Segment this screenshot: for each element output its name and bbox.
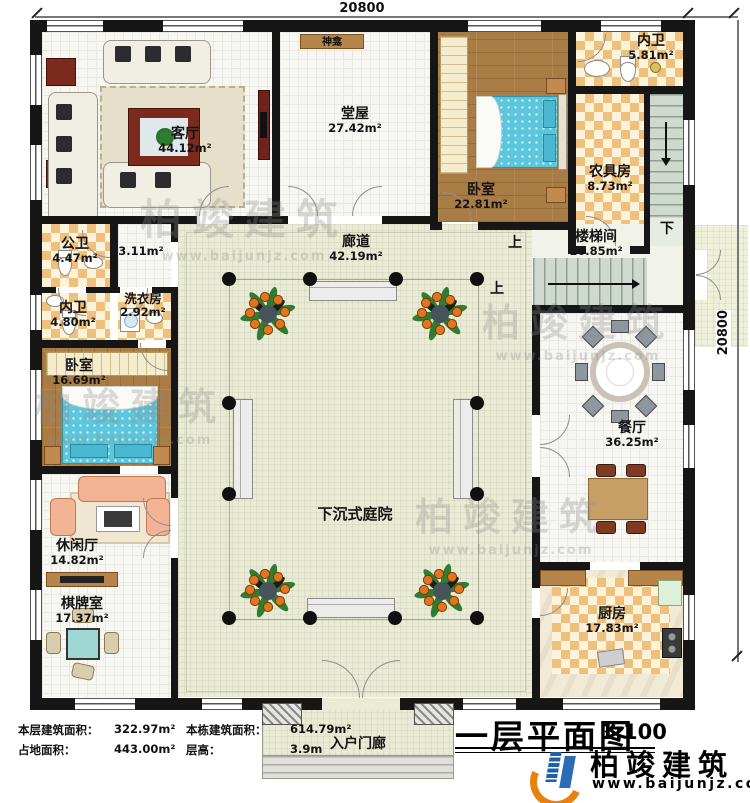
courtyard-plant: [240, 286, 296, 342]
bed-quilt: [476, 96, 502, 168]
wall-segment: [568, 32, 576, 92]
kitchen-counter: [540, 570, 586, 586]
floor-drain: [650, 62, 661, 73]
mahjong-table: [66, 628, 100, 660]
courtyard-plant: [414, 563, 470, 619]
sink: [584, 60, 610, 77]
nightstand: [153, 446, 170, 465]
window: [683, 120, 695, 185]
nightstand: [546, 78, 566, 94]
stat-height-label: 层高：: [186, 742, 290, 758]
column: [222, 611, 236, 625]
plan-scale: 1:100: [600, 720, 667, 744]
chair: [46, 632, 61, 654]
window: [683, 595, 695, 640]
window: [468, 20, 541, 32]
room-label-bedroom-top: 卧室22.81m²: [448, 182, 514, 211]
stat-total-area-value: 614.79m²: [290, 722, 354, 738]
wall-segment: [430, 222, 442, 230]
room-label-hallhouse: 堂屋27.42m²: [320, 106, 390, 135]
headboard: [558, 94, 567, 170]
courtyard-plant: [240, 563, 296, 619]
window: [47, 20, 103, 32]
column: [389, 272, 403, 286]
wall-segment: [158, 466, 171, 474]
wall-segment: [30, 20, 695, 32]
shrine-label: 神龛: [322, 37, 342, 48]
window: [601, 20, 661, 32]
dining-chair: [575, 363, 588, 381]
dim-line-right: [737, 20, 739, 662]
wall-segment: [568, 86, 683, 94]
column: [222, 396, 236, 410]
wall-segment: [532, 313, 540, 415]
room-label-lounge: 休闲厅14.82m²: [36, 538, 118, 567]
courtyard-bench-right: [453, 399, 473, 499]
tv-icon: [60, 576, 104, 583]
room-label-corridor: 廊道42.19m²: [320, 234, 392, 263]
column: [470, 272, 484, 286]
stat-floor-area-label: 本层建筑面积：: [18, 722, 114, 738]
porch-steps: [262, 755, 454, 779]
window: [163, 20, 243, 32]
column: [470, 487, 484, 501]
chair: [626, 521, 646, 534]
lounge-tray: [104, 511, 132, 527]
room-label-laundry: 洗衣房2.92m²: [112, 292, 174, 320]
stat-total-area-label: 本栋建筑面积：: [186, 722, 290, 738]
nightstand: [44, 446, 61, 465]
room-label-bath-top: 内卫5.81m²: [620, 33, 682, 62]
floor-plan-canvas: 神龛: [0, 0, 750, 803]
stairs-up-label2: 上: [490, 278, 504, 298]
wall-segment: [42, 287, 56, 293]
wall-segment: [430, 32, 438, 222]
room-label-stairwell: 楼梯间16.85m²: [557, 229, 635, 258]
window: [563, 698, 660, 710]
stairs-lower-flight: [533, 258, 647, 305]
sofa-pillow: [120, 172, 136, 188]
window: [75, 698, 135, 710]
window: [683, 425, 695, 468]
window: [30, 295, 42, 330]
room-label-courtyard: 下沉式庭院: [296, 506, 414, 523]
wall-segment: [272, 32, 280, 224]
window: [30, 55, 42, 105]
column: [470, 396, 484, 410]
side-table: [46, 58, 76, 86]
stairs-down-label: 下: [660, 218, 674, 238]
tv-icon: [260, 112, 267, 138]
dim-top-value: 20800: [330, 1, 394, 16]
sofa-pillow: [155, 172, 171, 188]
window: [30, 145, 42, 200]
room-label-bedroom-left: 卧室16.69m²: [40, 358, 118, 387]
stove: [662, 628, 682, 658]
stat-footprint-label: 占地面积：: [18, 742, 114, 758]
courtyard-bench-bottom: [307, 598, 395, 618]
sofa-pillow: [115, 46, 131, 62]
chair: [626, 464, 646, 477]
porch-pier: [414, 703, 454, 725]
room-label-living: 客厅44.12m²: [145, 126, 225, 155]
column: [388, 611, 402, 625]
window: [30, 480, 42, 530]
wall-segment: [171, 558, 178, 698]
window: [463, 698, 516, 710]
wall-segment: [532, 305, 683, 313]
shrine-shelf: 神龛: [300, 34, 364, 49]
sofa-pillow: [56, 136, 72, 152]
room-label-public-bath: 公卫4.47m²: [46, 236, 104, 265]
wall-segment: [532, 618, 540, 698]
dim-right-value: 20800: [716, 310, 731, 355]
room-label-bath-left: 内卫4.80m²: [42, 300, 104, 329]
wall-segment: [229, 216, 288, 224]
chair: [596, 521, 616, 534]
column: [470, 611, 484, 625]
sofa-pillow: [56, 104, 72, 120]
brand-logo-icon: [528, 748, 584, 798]
chair: [104, 632, 119, 654]
room-label-toolroom: 农具房8.73m²: [577, 164, 643, 193]
window: [202, 698, 242, 710]
column: [222, 272, 236, 286]
wall-segment: [42, 216, 197, 224]
wall-segment: [644, 94, 650, 246]
window: [683, 330, 695, 390]
room-label-dining: 餐厅36.25m²: [592, 420, 672, 449]
bed-pillow: [543, 134, 556, 162]
wall-segment: [42, 340, 138, 348]
column: [303, 272, 317, 286]
kitchen-sink: [658, 580, 682, 606]
wall-segment: [171, 224, 178, 242]
wall-segment: [532, 562, 590, 570]
wall-segment: [42, 466, 120, 474]
dining-chair: [652, 363, 665, 381]
stat-footprint-value: 443.00m²: [114, 742, 186, 758]
dining-chair: [611, 320, 629, 333]
entrance-opening: [322, 698, 400, 710]
room-label-kitchen: 厨房17.83m²: [576, 606, 648, 635]
stairs-arrow-head: [661, 158, 671, 171]
lounge-chair: [50, 498, 76, 536]
stairs-up-label: 上: [508, 232, 522, 252]
rect-table: [588, 478, 648, 520]
courtyard-plant: [412, 286, 468, 342]
bed-pillow: [114, 444, 152, 458]
courtyard-bench-top: [309, 281, 397, 301]
column: [303, 611, 317, 625]
column: [222, 487, 236, 501]
bed-pillow: [543, 100, 556, 128]
nightstand: [546, 187, 566, 203]
wall-segment: [532, 477, 540, 588]
courtyard-bench-left: [233, 399, 253, 499]
round-table-inner: [606, 358, 634, 386]
chair: [596, 464, 616, 477]
sofa-pillow: [175, 46, 191, 62]
stairs-arrow-line2: [548, 283, 634, 285]
wall-segment: [640, 562, 683, 570]
room-label-small-hall: 3.11m²: [112, 245, 170, 258]
sofa-pillow: [56, 168, 72, 184]
room-label-chess: 棋牌室17.37m²: [38, 596, 126, 625]
dim-line-top: [35, 16, 738, 18]
stat-floor-area-value: 322.97m²: [114, 722, 186, 738]
brand-url: www.baijunjz.com: [592, 776, 750, 792]
wall-segment: [382, 216, 430, 224]
bed-pillow: [70, 444, 108, 458]
sofa-pillow: [145, 46, 161, 62]
wardrobe: [440, 36, 468, 174]
stat-height-value: 3.9m: [290, 742, 354, 758]
stairs-arrow-head2: [632, 279, 645, 289]
stairs-arrow-line: [665, 122, 667, 160]
stats-block: 本层建筑面积： 322.97m² 本栋建筑面积： 614.79m² 占地面积： …: [18, 722, 298, 758]
